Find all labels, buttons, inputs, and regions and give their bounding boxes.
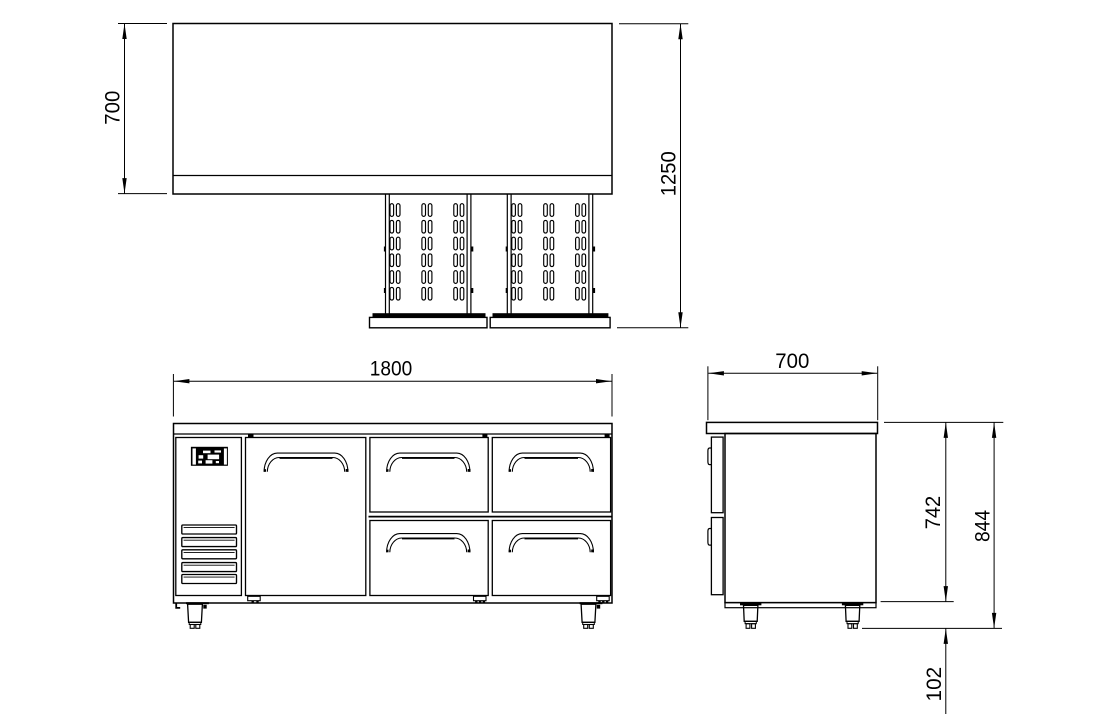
svg-text:844: 844	[970, 510, 994, 542]
svg-text:1800: 1800	[370, 357, 413, 381]
svg-text:700: 700	[775, 349, 809, 373]
svg-text:1250: 1250	[657, 151, 681, 196]
svg-text:700: 700	[101, 91, 125, 125]
svg-text:102: 102	[922, 667, 946, 702]
svg-text:742: 742	[921, 496, 945, 530]
